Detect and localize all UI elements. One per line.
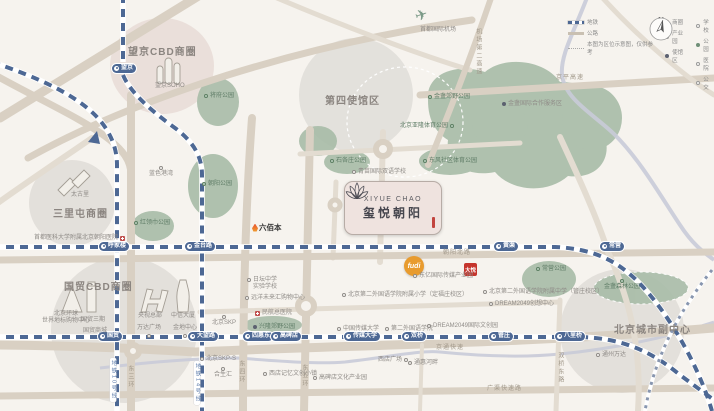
poi-label: 北京SKP-S [200, 356, 236, 363]
metro-station-label: 大望路 [197, 333, 215, 340]
poi-text: 太古里 [71, 192, 89, 199]
poi-label: 国贸三期 [81, 317, 105, 324]
legend-note-symbol [568, 48, 584, 49]
poi-marker-icon [245, 296, 249, 300]
poi-label: 第二外国语学院 [385, 326, 433, 333]
district-label: 第四使馆区 [325, 96, 380, 108]
park-marker-icon [450, 124, 454, 128]
legend-item-label: 地铁 [587, 18, 598, 26]
legend-item-label: 医院 [703, 56, 714, 72]
poi-label: 太古里 [71, 192, 89, 199]
metro-station-label: 四惠东 [252, 333, 270, 340]
park-label: 东风社区体育公园 [423, 158, 477, 165]
poi-marker-icon [221, 367, 225, 371]
park-label: 红领巾公园 [134, 220, 170, 227]
project-name-en: XIYUE CHAO [364, 196, 422, 203]
metro-station: 双桥 [402, 332, 426, 341]
poi-label: 北京第二外国语学院附属小学（定福庄校区） [342, 292, 468, 299]
poi-marker-icon [159, 166, 163, 170]
park-marker-icon [202, 182, 206, 186]
legend-item-label: 公路 [587, 29, 598, 37]
metro-station: 呼家楼 [99, 242, 129, 251]
metro-station: 八里桥 [555, 332, 585, 341]
poi-label: DREAM2049国际文创园 [427, 323, 498, 330]
poi-text: 西店广场 [378, 357, 402, 364]
legend-item: 使馆区 [665, 48, 688, 64]
metro-station: 四惠东 [243, 332, 273, 341]
poi-marker-icon [385, 327, 389, 331]
legend-road-symbol [568, 32, 584, 35]
poi-label: 国贸商城 [83, 328, 107, 335]
poi-marker-icon [337, 327, 341, 331]
park-text: 金盏森林公园 [604, 284, 640, 291]
poi-label: DREAM2049创想中心 [489, 301, 554, 308]
park-text: 东风社区体育公园 [429, 158, 477, 165]
poi-label: 日坛中学 实验学校 [247, 277, 277, 291]
train-icon [114, 66, 119, 71]
poi-label: 金盏国际合作服务区 [502, 101, 562, 108]
park-text: 兴隆郊野公园 [259, 324, 295, 331]
poi-text: 中国传媒大学 [343, 326, 379, 333]
park-marker-icon [536, 267, 540, 271]
park-marker-icon [253, 325, 257, 329]
metro-station-label: 高碑店 [280, 333, 298, 340]
train-icon [273, 334, 278, 339]
legend-filled-green-symbol [696, 43, 700, 47]
poi-label: 首都医科大学附属北京朝阳医院 [34, 235, 125, 242]
liubaiben-badge-label: 六佰本 [259, 222, 282, 233]
road-label: 双桥东路 [556, 352, 563, 384]
park-text: 红领巾公园 [140, 220, 170, 227]
district-label: 北京城市副中心 [614, 325, 691, 337]
poi-marker-icon [413, 274, 417, 278]
poi-label: 东亿国际传媒产业园 [413, 273, 473, 280]
legend-item-label: 本图为区位示意图，仅供参考 [587, 40, 657, 56]
location-map: XIYUE CHAO 玺悦朝阳 ✈ 首都国际机场 fudi 六佰本 大悦 地铁公… [0, 0, 714, 411]
metro-station-label: 黄渠 [503, 243, 515, 250]
poi-marker-icon [200, 357, 204, 361]
poi-text: 中信大厦 [171, 313, 195, 320]
park-marker-icon [330, 159, 334, 163]
train-icon [557, 334, 562, 339]
poi-label: 西店记忆文创小镇 [263, 371, 317, 378]
poi-marker-icon [483, 290, 487, 294]
poi-label: 合生汇 [214, 366, 232, 379]
legend-outline-symbol [696, 81, 700, 85]
poi-text: 通州万达 [602, 352, 626, 359]
legend-item-label: 公交 [703, 75, 714, 91]
poi-text: 日坛中学 实验学校 [253, 277, 277, 291]
legend-outline-symbol [696, 24, 700, 28]
poi-text: 高碑店文化产业园 [319, 375, 367, 382]
legend-item: 公园 [696, 37, 714, 53]
metro-station: 常营 [600, 242, 624, 251]
poi-marker-icon [489, 302, 493, 306]
poi-marker-icon [408, 361, 412, 365]
poi-text: 首都医科大学附属北京朝阳医院 [34, 235, 118, 242]
airport-label: 首都国际机场 [420, 27, 456, 34]
park-label: 金盏森林公园 [604, 278, 640, 291]
metro-station-label: 呼家楼 [108, 243, 126, 250]
compass-north: N [648, 16, 674, 25]
liubaiben-mall-badge: 六佰本 [252, 222, 282, 233]
poi-text: 金盏国际合作服务区 [508, 101, 562, 108]
poi-label: 远洋未来汇购物中心 [245, 295, 305, 302]
park-text: 石各庄公园 [336, 158, 366, 165]
park-text: 金盏郊野公园 [434, 94, 470, 101]
train-icon [346, 334, 351, 339]
park-marker-icon [423, 159, 427, 163]
legend-item: 地铁 [568, 18, 657, 26]
park-label: 金盏郊野公园 [428, 94, 470, 101]
poi-marker-icon [222, 315, 226, 319]
train-icon [245, 334, 250, 339]
park-text: 北京亚隆体育公园 [400, 123, 448, 130]
legend-item: 本图为区位示意图，仅供参考 [568, 40, 657, 56]
poi-text: 通惠河畔 [414, 360, 438, 367]
district-label: 望京CBD商圈 [128, 47, 197, 59]
poi-text: DREAM2049创想中心 [495, 301, 554, 308]
metro-station-label: 望京 [121, 65, 133, 72]
poi-label: 金地中心 [173, 325, 197, 338]
map-legend: 地铁公路本图为区位示意图，仅供参考 商圈产业园使馆区 学校公园医院公交 [568, 18, 714, 91]
park-label: 朝阳公园 [202, 181, 232, 188]
legend-item: 公交 [696, 75, 714, 91]
poi-label: 青苗国际双语学校 [352, 169, 406, 176]
poi-label: 民航总医院 [255, 310, 292, 317]
metro-station-label: 国贸 [107, 333, 119, 340]
park-marker-icon [204, 94, 208, 98]
train-icon [496, 244, 501, 249]
poi-marker-icon [427, 324, 431, 328]
poi-hospital-cross-icon [255, 311, 260, 316]
poi-label: 中信大厦 [171, 313, 195, 320]
legend-item: 医院 [696, 56, 714, 72]
poi-text: 西店记忆文创小镇 [269, 371, 317, 378]
poi-label: 通惠河畔 [408, 360, 438, 367]
metro-station-label: 传媒大学 [353, 333, 377, 340]
fudi-badge-label: fudi [408, 263, 421, 270]
park-label: 兴隆郊野公园 [253, 324, 295, 331]
poi-label: 中国传媒大学 [337, 326, 379, 333]
metro-station-label: 金台路 [194, 243, 212, 250]
legend-item-label: 学校 [703, 18, 714, 34]
legend-metro-symbol [568, 21, 584, 24]
district-label: 三里屯商圈 [53, 209, 108, 221]
poi-label: 北京SKP [212, 314, 236, 327]
train-icon [101, 244, 106, 249]
road-label: 京平高速 [556, 75, 584, 82]
poi-marker-icon [342, 293, 346, 297]
road-label: 朝阳北路 [443, 250, 471, 257]
park-text: 将府公园 [210, 93, 234, 100]
road-label: 广渠快速路 [487, 386, 522, 393]
road-label: 机场第二高速 [474, 28, 481, 76]
metro-station-label: 双桥 [411, 333, 423, 340]
poi-text: 民航总医院 [262, 310, 292, 317]
poi-text: 合生汇 [214, 372, 232, 379]
metro-station: 高碑店 [271, 332, 301, 341]
metro-station-label: 常营 [609, 243, 621, 250]
road-label: 东四环 [237, 360, 244, 384]
poi-text: 国贸三期 [81, 317, 105, 324]
poi-marker-icon [313, 376, 317, 380]
train-icon [187, 244, 192, 249]
project-name-cn: 玺悦朝阳 [363, 204, 423, 221]
road-label: 京通快速 [436, 345, 464, 352]
poi-text: 北京第二外国语学院附属中学（管庄校区） [489, 289, 603, 296]
project-logo-icon [345, 182, 369, 199]
poi-hospital-cross-icon [120, 236, 125, 241]
train-icon [491, 334, 496, 339]
train-icon [602, 244, 607, 249]
metro-line-label: 地铁14号线 [194, 361, 200, 405]
poi-text: 万达广场 [137, 325, 161, 332]
road-label: 东三环 [126, 365, 133, 389]
legend-item: 公路 [568, 29, 657, 37]
poi-text: 央视总部 [138, 313, 162, 320]
metro-line-label: 地铁10号线 [110, 358, 116, 402]
poi-label: 望京SOHO [155, 83, 185, 90]
park-label: 常营公园 [536, 266, 566, 273]
compass-needle-icon [648, 16, 674, 42]
poi-text: 远洋未来汇购物中心 [251, 295, 305, 302]
legend-item-label: 使馆区 [672, 48, 688, 64]
district-label: 国贸CBD商圈 [64, 282, 133, 294]
park-text: 常营公园 [542, 266, 566, 273]
poi-text: 北京SKP [212, 320, 236, 327]
metro-station: 传媒大学 [344, 332, 380, 341]
poi-text: 国贸商城 [83, 328, 107, 335]
legend-outline-symbol [696, 62, 700, 66]
park-text: 朝阳公园 [208, 181, 232, 188]
legend-item: 学校 [696, 18, 714, 34]
poi-text: 望京SOHO [155, 83, 185, 90]
poi-marker-icon [352, 170, 356, 174]
metro-station: 望京 [112, 64, 136, 73]
metro-station-label: 八里桥 [564, 333, 582, 340]
poi-marker-icon [183, 334, 187, 338]
poi-text: 北京SKP-S [206, 356, 236, 363]
poi-text: 北京第二外国语学院附属小学（定福庄校区） [348, 292, 468, 299]
park-marker-icon [428, 95, 432, 99]
poi-marker-icon [263, 372, 267, 376]
poi-label: 高碑店文化产业园 [313, 375, 367, 382]
metro-station: 金台路 [185, 242, 215, 251]
poi-text: 蓝色港湾 [149, 171, 173, 178]
poi-label: 通州万达 [596, 352, 626, 359]
poi-text: 青苗国际双语学校 [358, 169, 406, 176]
poi-label: 央视总部 [138, 313, 162, 320]
poi-marker-icon [596, 353, 600, 357]
poi-marker-icon [502, 102, 506, 106]
metro-station-label: 管庄 [498, 333, 510, 340]
train-icon [404, 334, 409, 339]
poi-marker-icon [247, 278, 251, 282]
park-label: 将府公园 [204, 93, 234, 100]
legend-item-label: 公园 [703, 37, 714, 53]
poi-text: 金地中心 [173, 325, 197, 332]
poi-marker-icon [147, 334, 151, 338]
poi-label: 北京第二外国语学院附属中学（管庄校区） [483, 289, 603, 296]
poi-text: 东亿国际传媒产业园 [419, 273, 473, 280]
poi-label: 西店广场 [378, 357, 408, 364]
legend-poi-types-2: 学校公园医院公交 [696, 18, 714, 91]
metro-station: 黄渠 [494, 242, 518, 251]
legend-filled-dark-symbol [665, 54, 669, 58]
legend-item-label: 产业园 [672, 29, 688, 45]
metro-station: 管庄 [489, 332, 513, 341]
park-label: 北京亚隆体育公园 [400, 123, 454, 130]
poi-label: 万达广场 [137, 325, 161, 338]
park-label: 石各庄公园 [330, 158, 366, 165]
park-marker-icon [620, 279, 624, 283]
poi-label: 蓝色港湾 [149, 165, 173, 178]
project-card: XIYUE CHAO 玺悦朝阳 [344, 181, 442, 235]
poi-text: DREAM2049国际文创园 [433, 323, 498, 330]
park-marker-icon [134, 221, 138, 225]
project-marker-flag [432, 217, 435, 228]
road-label: 东五环 [300, 364, 307, 388]
